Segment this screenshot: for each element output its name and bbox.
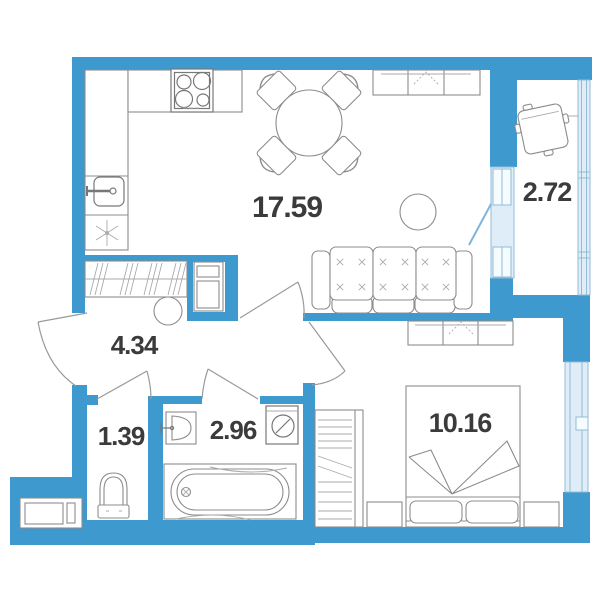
sofa [312, 247, 472, 313]
balcony-chair [511, 97, 575, 161]
label-hallway-area: 4.34 [111, 330, 159, 360]
entry-door [38, 313, 87, 386]
toilet-door [97, 371, 151, 399]
label-toilet-area: 1.39 [98, 421, 145, 451]
vent-shaft [20, 498, 82, 528]
shoe-cabinet [194, 262, 223, 311]
floor-plan-svg: 17.59 2.72 4.34 1.39 2.96 10.16 [0, 0, 600, 600]
stove [171, 69, 213, 112]
balcony-door-leaf [469, 204, 491, 245]
toilet [98, 473, 129, 518]
nightstand-right [524, 502, 559, 527]
bathtub [164, 464, 296, 520]
pillow-right [466, 501, 518, 523]
stool [154, 297, 182, 325]
bathroom-door [202, 369, 258, 399]
label-bathroom-area: 2.96 [210, 415, 257, 445]
bedroom-door [309, 322, 345, 385]
bedroom-wardrobe [315, 410, 363, 527]
pillow-left [410, 501, 462, 523]
bedroom-closet [408, 321, 513, 345]
balcony-furniture [511, 97, 578, 161]
balcony-window [578, 80, 590, 295]
washing-machine [266, 406, 298, 444]
floor-plan: 17.59 2.72 4.34 1.39 2.96 10.16 [0, 0, 600, 600]
label-bedroom-area: 10.16 [429, 408, 493, 438]
coat-rack [85, 261, 187, 297]
nightstand-left [367, 502, 402, 527]
bathroom-sink [161, 412, 196, 444]
kitchen-counter [85, 70, 242, 250]
living-closet [373, 70, 480, 95]
label-balcony-area: 2.72 [523, 177, 572, 207]
balcony-glazed-door [469, 167, 514, 278]
bedroom-window [565, 362, 588, 492]
living-room-door [240, 282, 304, 318]
label-living-kitchen-area: 17.59 [252, 191, 322, 224]
side-table [400, 194, 436, 230]
